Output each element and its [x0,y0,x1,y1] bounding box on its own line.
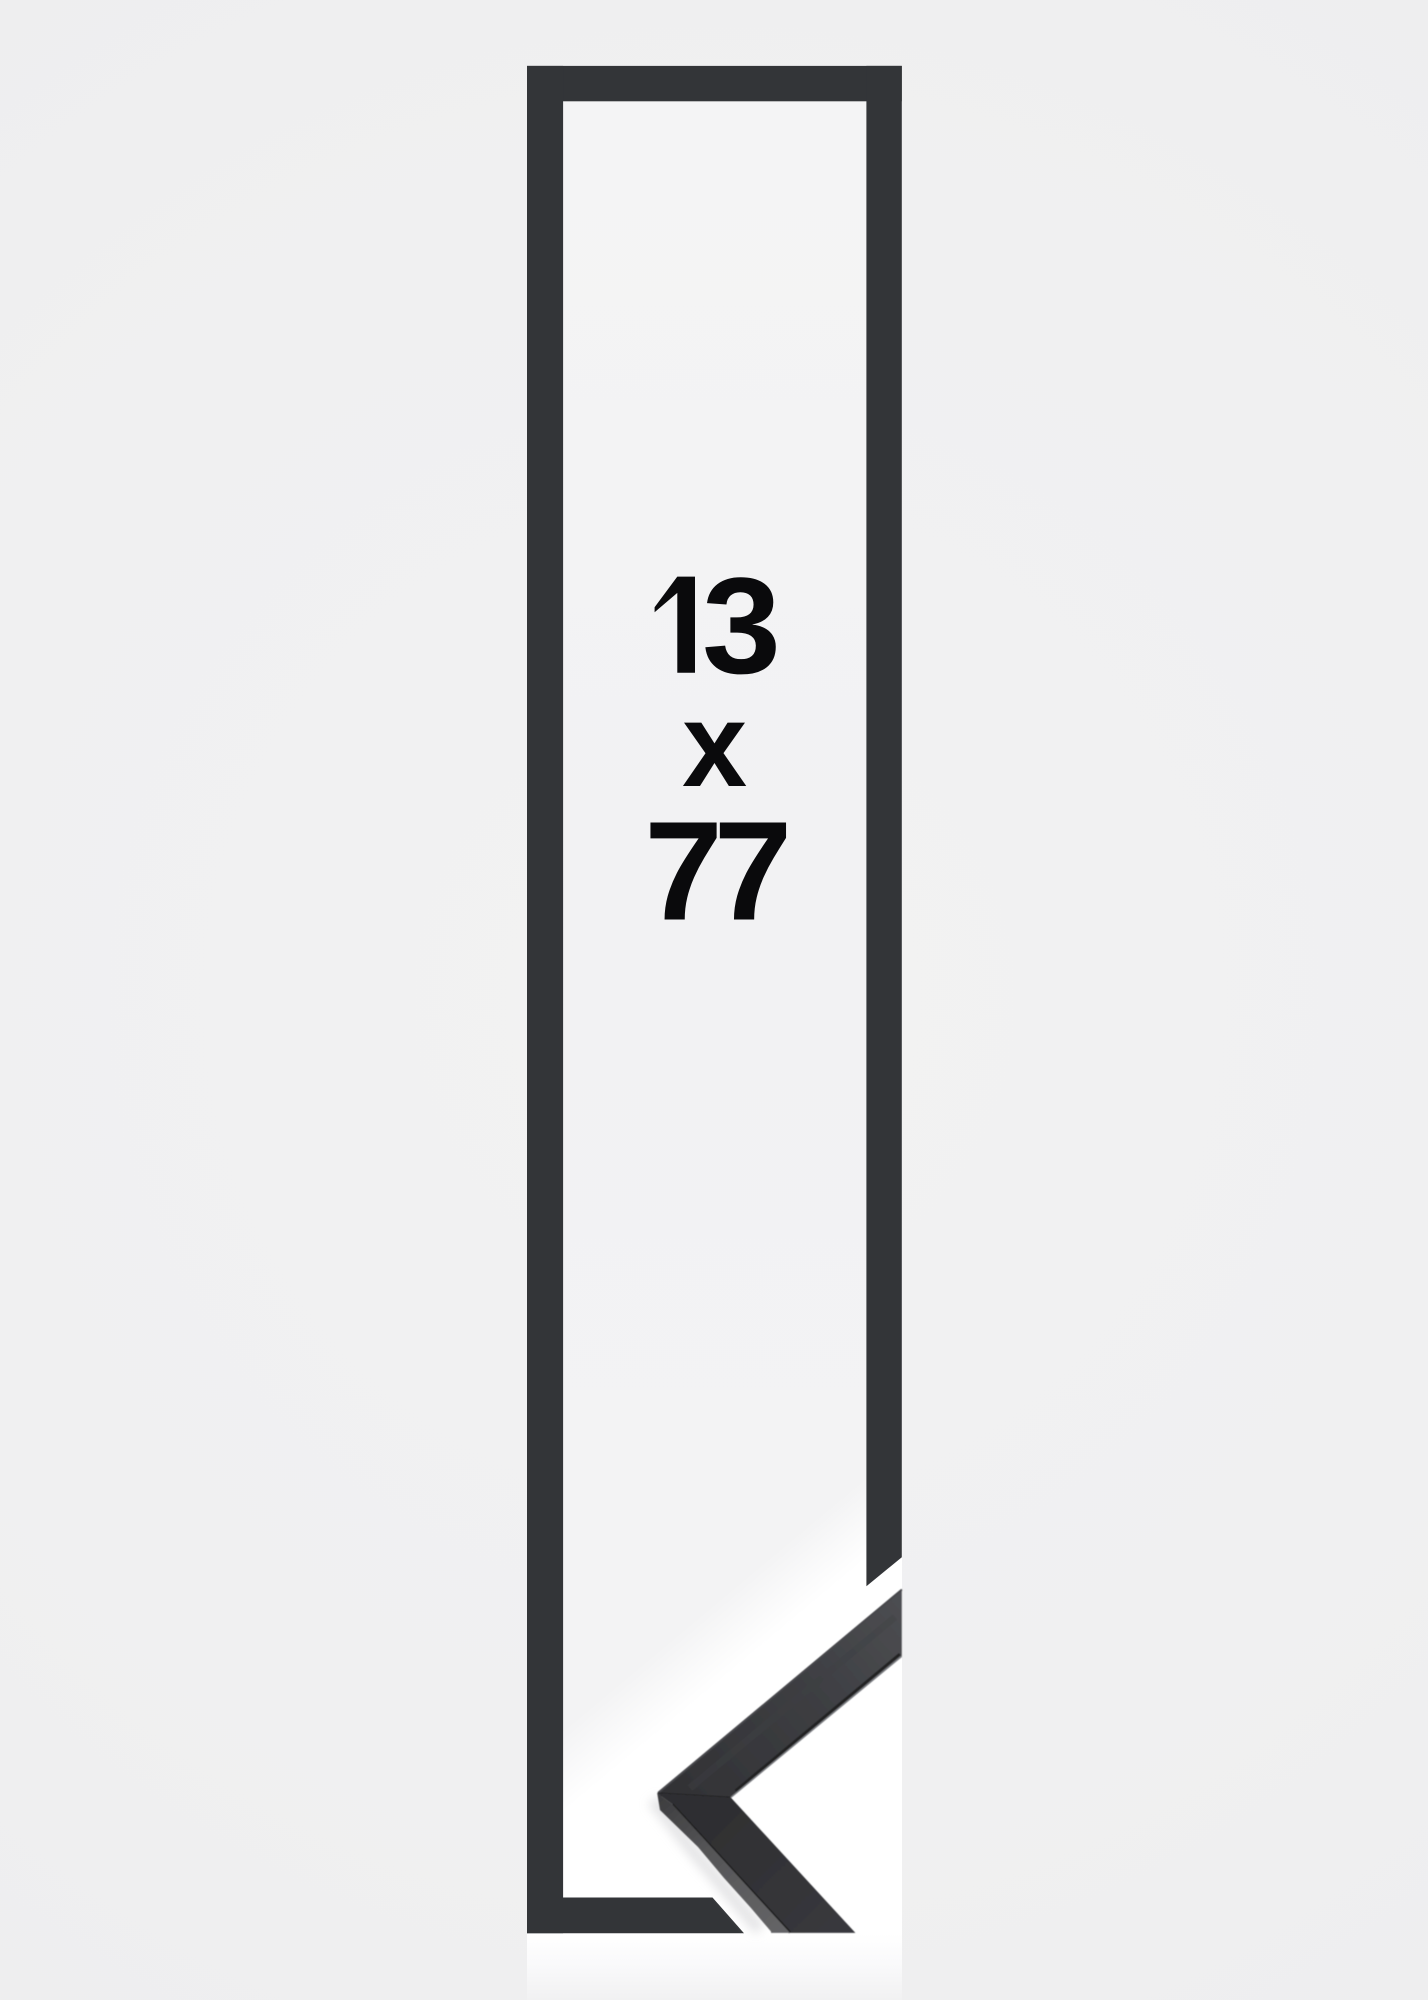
svg-text:77: 77 [644,792,786,950]
